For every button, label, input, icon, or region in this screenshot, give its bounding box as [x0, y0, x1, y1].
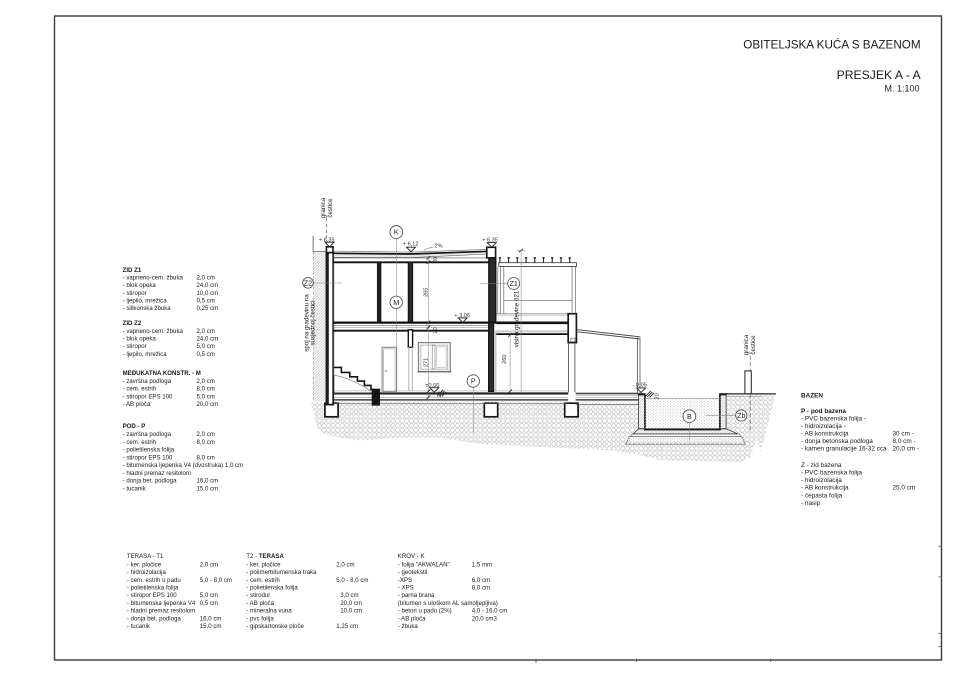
svg-text:2,0 cm: 2,0 cm: [197, 431, 215, 438]
svg-text:BAZEN: BAZEN: [801, 393, 823, 400]
svg-text:0,5 cm: 0,5 cm: [197, 298, 215, 305]
svg-text:- blok opeka: - blok opeka: [123, 282, 157, 289]
svg-text:0,5 cm: 0,5 cm: [200, 600, 218, 607]
svg-text:- žbuka: - žbuka: [398, 623, 419, 630]
svg-text:20,0 cm: 20,0 cm: [340, 600, 362, 607]
svg-text:8,0 cm -: 8,0 cm -: [893, 438, 916, 445]
svg-text:271: 271: [424, 358, 430, 367]
svg-text:- ljepilo, mrežica: - ljepilo, mrežica: [123, 351, 168, 358]
svg-text:25,0 cm: 25,0 cm: [893, 485, 916, 492]
svg-text:2,0 cm: 2,0 cm: [336, 561, 354, 568]
svg-text:- folija "AKWALAN": - folija "AKWALAN": [398, 561, 450, 568]
svg-text:6,0 cm: 6,0 cm: [472, 577, 490, 584]
svg-text:T2 - TERASA: T2 - TERASA: [246, 553, 284, 560]
svg-text:20: 20: [655, 393, 661, 399]
svg-text:- PVC bazenska folija -: - PVC bazenska folija -: [801, 415, 866, 422]
svg-text:5,0 cm: 5,0 cm: [197, 343, 215, 350]
svg-text:Z - zid bazena: Z - zid bazena: [801, 462, 842, 469]
svg-text:5,0 - 8,0 cm: 5,0 - 8,0 cm: [200, 577, 232, 584]
svg-text:16,0 cm: 16,0 cm: [197, 478, 219, 485]
svg-text:0,5 cm: 0,5 cm: [197, 351, 215, 358]
svg-text:5,0 cm: 5,0 cm: [197, 393, 215, 400]
svg-text:3,0 cm: 3,0 cm: [340, 592, 358, 599]
svg-text:0,25 cm: 0,25 cm: [197, 305, 219, 312]
svg-text:260: 260: [502, 355, 508, 364]
svg-text:- završna podloga: - završna podloga: [123, 431, 172, 438]
svg-text:- ker. pločice: - ker. pločice: [127, 561, 162, 568]
svg-text:B: B: [687, 412, 692, 421]
svg-text:8,0 cm: 8,0 cm: [197, 386, 215, 393]
svg-text:M. 1:100: M. 1:100: [884, 84, 919, 94]
svg-text:- AB konstrukcija: - AB konstrukcija: [801, 485, 849, 492]
svg-text:M: M: [393, 298, 399, 307]
svg-text:čestice: čestice: [750, 335, 757, 355]
svg-text:8,0 cm: 8,0 cm: [197, 454, 215, 461]
svg-text:20,0 cm -: 20,0 cm -: [893, 446, 920, 453]
svg-text:- cem. estrih: - cem. estrih: [123, 386, 157, 393]
svg-text:10,0 cm: 10,0 cm: [340, 608, 362, 615]
svg-text:KROV - K: KROV - K: [398, 553, 425, 560]
svg-text:10,0 cm: 10,0 cm: [197, 290, 219, 297]
svg-text:- stiropor EPS 100: - stiropor EPS 100: [123, 393, 173, 400]
svg-text:Zb: Zb: [737, 411, 745, 420]
svg-text:- 0,05: - 0,05: [633, 382, 647, 388]
svg-text:24,0 cm: 24,0 cm: [197, 282, 219, 289]
svg-text:+ 6,12: + 6,12: [403, 242, 419, 248]
svg-text:MEĐUKATNA KONSTR. - M: MEĐUKATNA KONSTR. - M: [123, 370, 201, 377]
svg-text:- cem. estrih: - cem. estrih: [246, 577, 280, 584]
svg-text:- gipskartonske ploče: - gipskartonske ploče: [246, 623, 304, 630]
svg-text:OBITELJSKA KUĆA S BAZENOM: OBITELJSKA KUĆA S BAZENOM: [743, 39, 920, 52]
svg-text:PRESJEK A - A: PRESJEK A - A: [837, 68, 922, 82]
svg-text:- hidroizolacija: - hidroizolacija: [127, 569, 167, 576]
svg-text:2,0 cm: 2,0 cm: [197, 274, 215, 281]
svg-text:-XPS: -XPS: [398, 577, 412, 584]
svg-text:4,0 - 16,0 cm: 4,0 - 16,0 cm: [472, 608, 508, 615]
svg-text:(bitumen s uloškom AL samoljep: (bitumen s uloškom AL samoljepljiva): [398, 600, 498, 607]
svg-text:visina građevine 621: visina građevine 621: [514, 290, 521, 347]
svg-text:ZID Z2: ZID Z2: [123, 320, 142, 327]
svg-text:- stiropor: - stiropor: [123, 343, 147, 350]
svg-text:- hladni premaz resitolom: - hladni premaz resitolom: [123, 470, 191, 477]
svg-text:K: K: [394, 228, 399, 237]
svg-text:- kamen granulacije 16-32 cca: - kamen granulacije 16-32 cca: [801, 446, 887, 453]
svg-text:- hidroizolacija -: - hidroizolacija -: [801, 423, 846, 430]
svg-text:- bitumenska ljepenka V4: - bitumenska ljepenka V4: [127, 600, 196, 607]
svg-text:- geotekstil: - geotekstil: [398, 569, 427, 576]
svg-text:24,0 cm: 24,0 cm: [197, 336, 219, 343]
svg-text:5,0 cm: 5,0 cm: [200, 592, 218, 599]
svg-text:Z2: Z2: [304, 278, 312, 287]
svg-text:- mineralna vuna: - mineralna vuna: [246, 608, 292, 615]
svg-text:granica: granica: [320, 197, 327, 218]
svg-text:- cem. estrih: - cem. estrih: [123, 439, 157, 446]
svg-text:- hladni premaz resitolom: - hladni premaz resitolom: [127, 608, 195, 615]
svg-text:1,5 mm: 1,5 mm: [472, 561, 492, 568]
svg-text:POD - P: POD - P: [123, 423, 146, 430]
svg-text:- polimerbitumenska traka: - polimerbitumenska traka: [246, 569, 317, 576]
svg-text:20: 20: [433, 327, 439, 333]
svg-text:- XPS: - XPS: [398, 585, 414, 592]
svg-text:- nasip: - nasip: [801, 500, 821, 507]
svg-text:P: P: [471, 377, 476, 386]
svg-text:- AB konstrukcija: - AB konstrukcija: [801, 431, 849, 438]
svg-text:- blok opeka: - blok opeka: [123, 336, 157, 343]
svg-text:15,0 cm: 15,0 cm: [197, 485, 219, 492]
svg-text:- stirodur: - stirodur: [246, 592, 270, 599]
svg-text:- hidroizolacija: - hidroizolacija: [801, 477, 842, 484]
svg-text:- PVC bazenska folija: - PVC bazenska folija: [801, 470, 863, 477]
svg-text:- polietilenska folija: - polietilenska folija: [123, 447, 175, 454]
svg-text:- polietilenska folija: - polietilenska folija: [246, 585, 298, 592]
svg-text:granica: granica: [743, 334, 750, 355]
svg-text:20,0 cm3: 20,0 cm3: [472, 615, 498, 622]
svg-text:265: 265: [423, 288, 429, 297]
svg-text:- tucanik: - tucanik: [127, 623, 151, 630]
svg-text:5,0 - 8,0 cm: 5,0 - 8,0 cm: [336, 577, 368, 584]
svg-text:20: 20: [433, 257, 439, 263]
svg-text:- AB ploča: - AB ploča: [398, 615, 426, 622]
svg-text:20,0 cm: 20,0 cm: [197, 401, 219, 408]
svg-text:susjednoj čestici: susjednoj čestici: [309, 300, 316, 345]
svg-text:- ker. pločice: - ker. pločice: [246, 561, 281, 568]
svg-text:2,0 cm: 2,0 cm: [197, 328, 215, 335]
svg-text:- parna brana: - parna brana: [398, 592, 435, 599]
svg-text:16,0 cm: 16,0 cm: [200, 615, 222, 622]
svg-text:- vapneno-cem. žbuka: - vapneno-cem. žbuka: [123, 274, 184, 281]
svg-text:- stiropor EPS 100: - stiropor EPS 100: [123, 454, 173, 461]
svg-text:- polietilenska folija: - polietilenska folija: [127, 585, 179, 592]
svg-text:P - pod bazena: P - pod bazena: [801, 408, 846, 415]
svg-text:- stiropor: - stiropor: [123, 290, 147, 297]
svg-text:Z1: Z1: [510, 279, 518, 288]
svg-text:8,0 cm: 8,0 cm: [472, 585, 490, 592]
svg-text:- beton u padu (2%): - beton u padu (2%): [398, 608, 452, 615]
svg-text:- cem. estrih u padu: - cem. estrih u padu: [127, 577, 181, 584]
svg-text:- donja bet. podloga: - donja bet. podloga: [127, 615, 181, 622]
svg-text:- vapneno-cem. žbuka: - vapneno-cem. žbuka: [123, 328, 184, 335]
svg-text:- silikonska žbuka: - silikonska žbuka: [123, 305, 172, 312]
svg-text:- završna podloga: - završna podloga: [123, 378, 172, 385]
svg-text:- ljepilo, mrežica: - ljepilo, mrežica: [123, 298, 168, 305]
svg-text:- AB ploča: - AB ploča: [246, 600, 274, 607]
svg-text:8,0 cm: 8,0 cm: [197, 439, 215, 446]
svg-text:- bitumenska ljepenka V4 (dvos: - bitumenska ljepenka V4 (dvostruka) 1,0…: [123, 462, 244, 469]
svg-text:- stiropor EPS 100: - stiropor EPS 100: [127, 592, 177, 599]
svg-text:2%: 2%: [435, 243, 443, 249]
svg-text:- čepasta folija: - čepasta folija: [801, 492, 843, 499]
svg-text:čestice: čestice: [327, 198, 334, 218]
svg-text:20: 20: [437, 391, 443, 397]
svg-text:ZID Z1: ZID Z1: [123, 267, 142, 274]
svg-text:30 cm -: 30 cm -: [893, 431, 914, 438]
svg-text:- pvc folija: - pvc folija: [246, 615, 274, 622]
svg-text:2,0 cm: 2,0 cm: [197, 378, 215, 385]
svg-text:2,0 cm: 2,0 cm: [200, 561, 218, 568]
svg-text:- tucanik: - tucanik: [123, 485, 147, 492]
svg-text:- donja betonska podloga: - donja betonska podloga: [801, 438, 873, 445]
svg-text:1,25 cm: 1,25 cm: [336, 623, 358, 630]
svg-text:TERASA - T1: TERASA - T1: [127, 553, 164, 560]
svg-text:15,0 cm: 15,0 cm: [200, 623, 222, 630]
svg-text:- donja bet. podloga: - donja bet. podloga: [123, 478, 177, 485]
svg-text:- AB ploča: - AB ploča: [123, 401, 151, 408]
